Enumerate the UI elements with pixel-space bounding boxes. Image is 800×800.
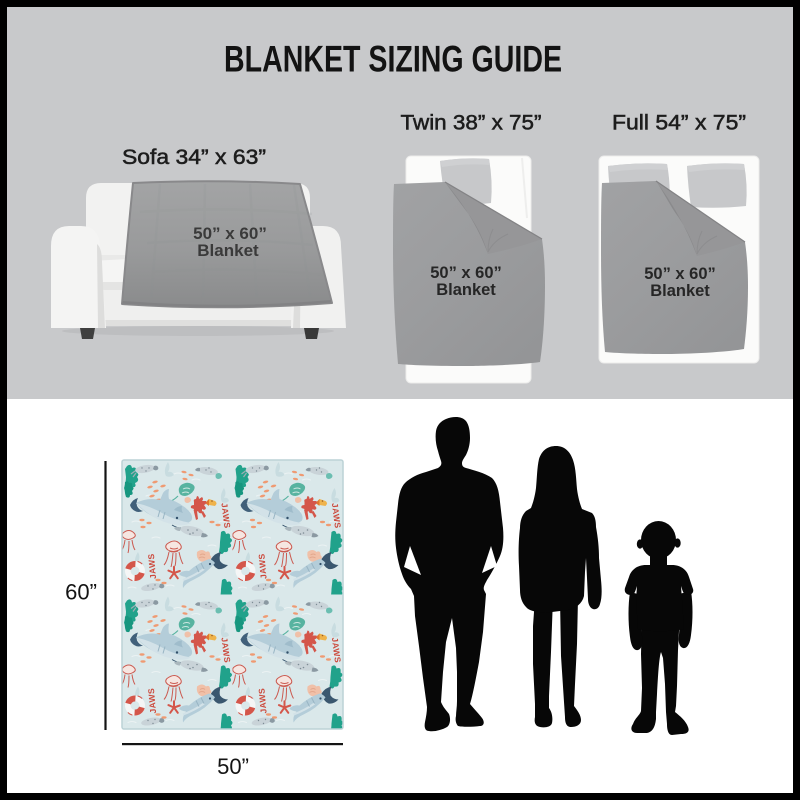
svg-text:50” x 60”: 50” x 60” [430, 264, 502, 282]
svg-text:Twin 38” x 75”: Twin 38” x 75” [401, 111, 542, 135]
svg-text:Blanket: Blanket [650, 282, 710, 300]
svg-text:60”: 60” [65, 580, 97, 605]
svg-text:BLANKET SIZING GUIDE: BLANKET SIZING GUIDE [224, 39, 562, 80]
svg-text:50” x 60”: 50” x 60” [644, 265, 716, 283]
svg-text:Blanket: Blanket [436, 281, 496, 299]
svg-text:Sofa 34” x 63”: Sofa 34” x 63” [122, 145, 266, 169]
svg-text:Blanket: Blanket [197, 241, 259, 260]
svg-text:50”: 50” [217, 754, 249, 779]
svg-text:Full 54” x 75”: Full 54” x 75” [612, 111, 746, 135]
